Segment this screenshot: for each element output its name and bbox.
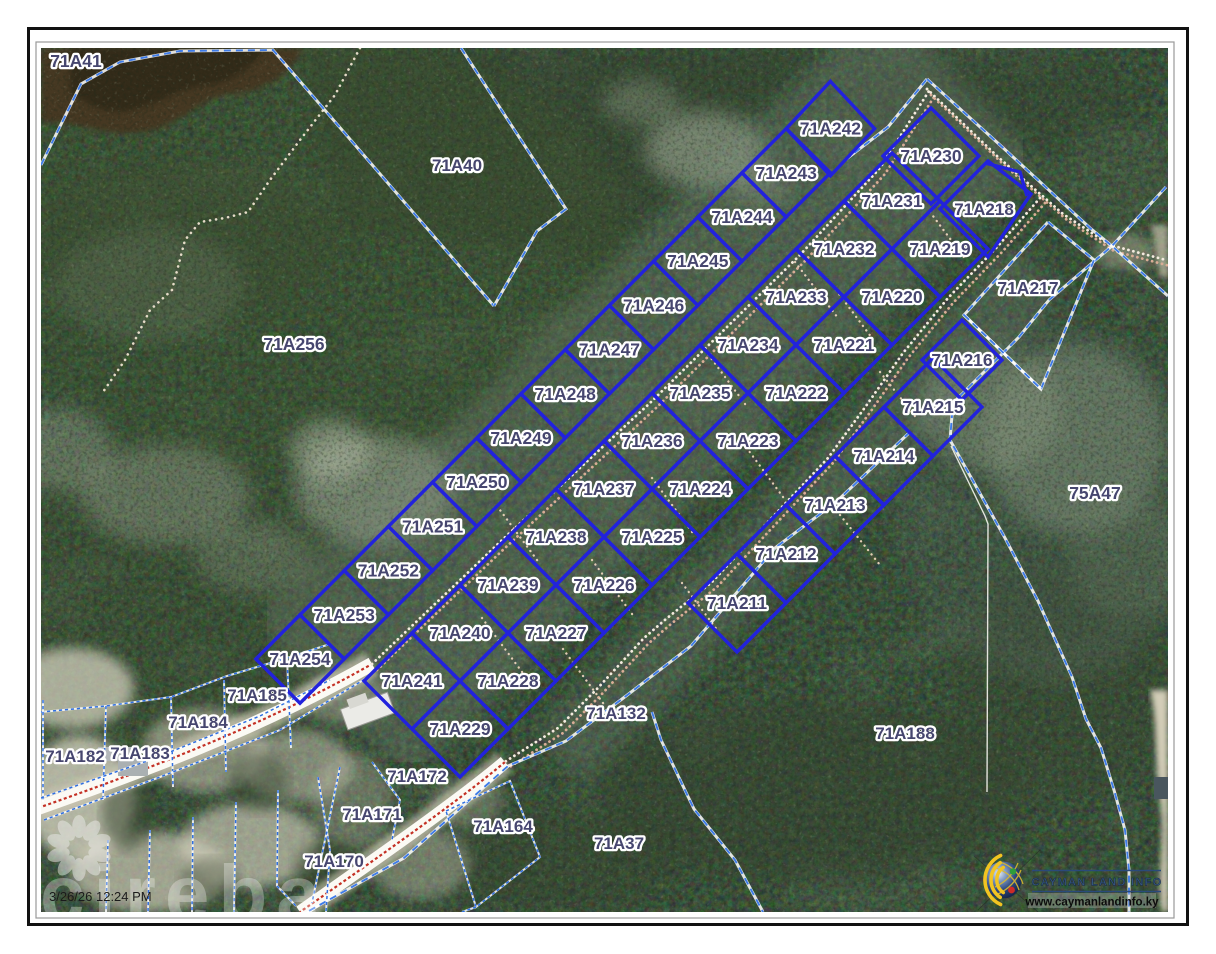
svg-text:71A246: 71A246 <box>623 295 685 315</box>
svg-text:71A182: 71A182 <box>45 747 105 766</box>
svg-text:71A235: 71A235 <box>669 383 731 403</box>
svg-text:71A228: 71A228 <box>477 671 539 691</box>
svg-text:71A240: 71A240 <box>429 623 491 643</box>
svg-text:71A40: 71A40 <box>432 156 482 175</box>
svg-text:71A225: 71A225 <box>621 527 683 547</box>
svg-text:71A164: 71A164 <box>473 817 533 836</box>
svg-text:71A236: 71A236 <box>621 431 683 451</box>
svg-text:71A132: 71A132 <box>586 704 646 723</box>
svg-text:71A252: 71A252 <box>358 561 420 581</box>
svg-text:71A185: 71A185 <box>227 686 287 705</box>
svg-text:3/26/26 12:24 PM: 3/26/26 12:24 PM <box>49 889 152 904</box>
svg-text:71A245: 71A245 <box>667 251 729 271</box>
svg-text:71A218: 71A218 <box>954 200 1014 219</box>
svg-text:71A250: 71A250 <box>446 472 508 492</box>
svg-text:71A188: 71A188 <box>875 724 935 743</box>
svg-text:71A171: 71A171 <box>342 805 402 824</box>
svg-text:75A47: 75A47 <box>1069 483 1121 503</box>
svg-text:71A248: 71A248 <box>535 384 597 404</box>
svg-text:71A230: 71A230 <box>900 146 962 166</box>
svg-text:71A239: 71A239 <box>477 575 539 595</box>
svg-text:71A247: 71A247 <box>579 340 640 360</box>
svg-text:71A227: 71A227 <box>525 623 586 643</box>
svg-text:71A249: 71A249 <box>490 428 552 448</box>
svg-text:71A226: 71A226 <box>573 575 635 595</box>
svg-text:71A229: 71A229 <box>429 719 491 739</box>
svg-text:71A215: 71A215 <box>902 397 964 417</box>
svg-text:71A256: 71A256 <box>263 334 325 354</box>
svg-text:CAYMAN LAND INFO: CAYMAN LAND INFO <box>1031 877 1162 889</box>
svg-text:71A223: 71A223 <box>717 431 779 451</box>
svg-text:71A37: 71A37 <box>594 834 644 853</box>
svg-text:71A224: 71A224 <box>669 479 731 499</box>
svg-text:71A232: 71A232 <box>813 239 875 259</box>
svg-text:www.caymanlandinfo.ky: www.caymanlandinfo.ky <box>1024 897 1159 909</box>
svg-text:71A251: 71A251 <box>402 516 464 536</box>
svg-text:71A238: 71A238 <box>525 527 587 547</box>
svg-text:71A219: 71A219 <box>909 239 971 259</box>
svg-text:71A242: 71A242 <box>800 119 862 139</box>
svg-text:71A241: 71A241 <box>381 671 443 691</box>
svg-text:71A184: 71A184 <box>168 713 228 732</box>
svg-text:71A211: 71A211 <box>707 593 768 613</box>
svg-text:71A243: 71A243 <box>756 163 818 183</box>
svg-text:71A233: 71A233 <box>765 287 827 307</box>
svg-text:71A237: 71A237 <box>573 479 634 499</box>
svg-text:71A253: 71A253 <box>314 605 376 625</box>
svg-text:71A216: 71A216 <box>931 350 993 370</box>
svg-text:71A212: 71A212 <box>755 544 817 564</box>
svg-text:71A221: 71A221 <box>813 335 875 355</box>
svg-text:71A254: 71A254 <box>269 649 331 669</box>
svg-text:71A214: 71A214 <box>853 446 915 466</box>
svg-text:71A244: 71A244 <box>711 207 773 227</box>
svg-text:71A183: 71A183 <box>110 744 170 763</box>
svg-text:71A234: 71A234 <box>717 335 779 355</box>
svg-text:71A220: 71A220 <box>861 287 923 307</box>
svg-text:71A222: 71A222 <box>765 383 827 403</box>
svg-text:71A172: 71A172 <box>387 767 447 786</box>
svg-text:71A213: 71A213 <box>804 495 866 515</box>
svg-text:71A41: 71A41 <box>50 51 102 71</box>
svg-text:71A231: 71A231 <box>861 191 923 211</box>
svg-text:71A217: 71A217 <box>997 278 1058 298</box>
